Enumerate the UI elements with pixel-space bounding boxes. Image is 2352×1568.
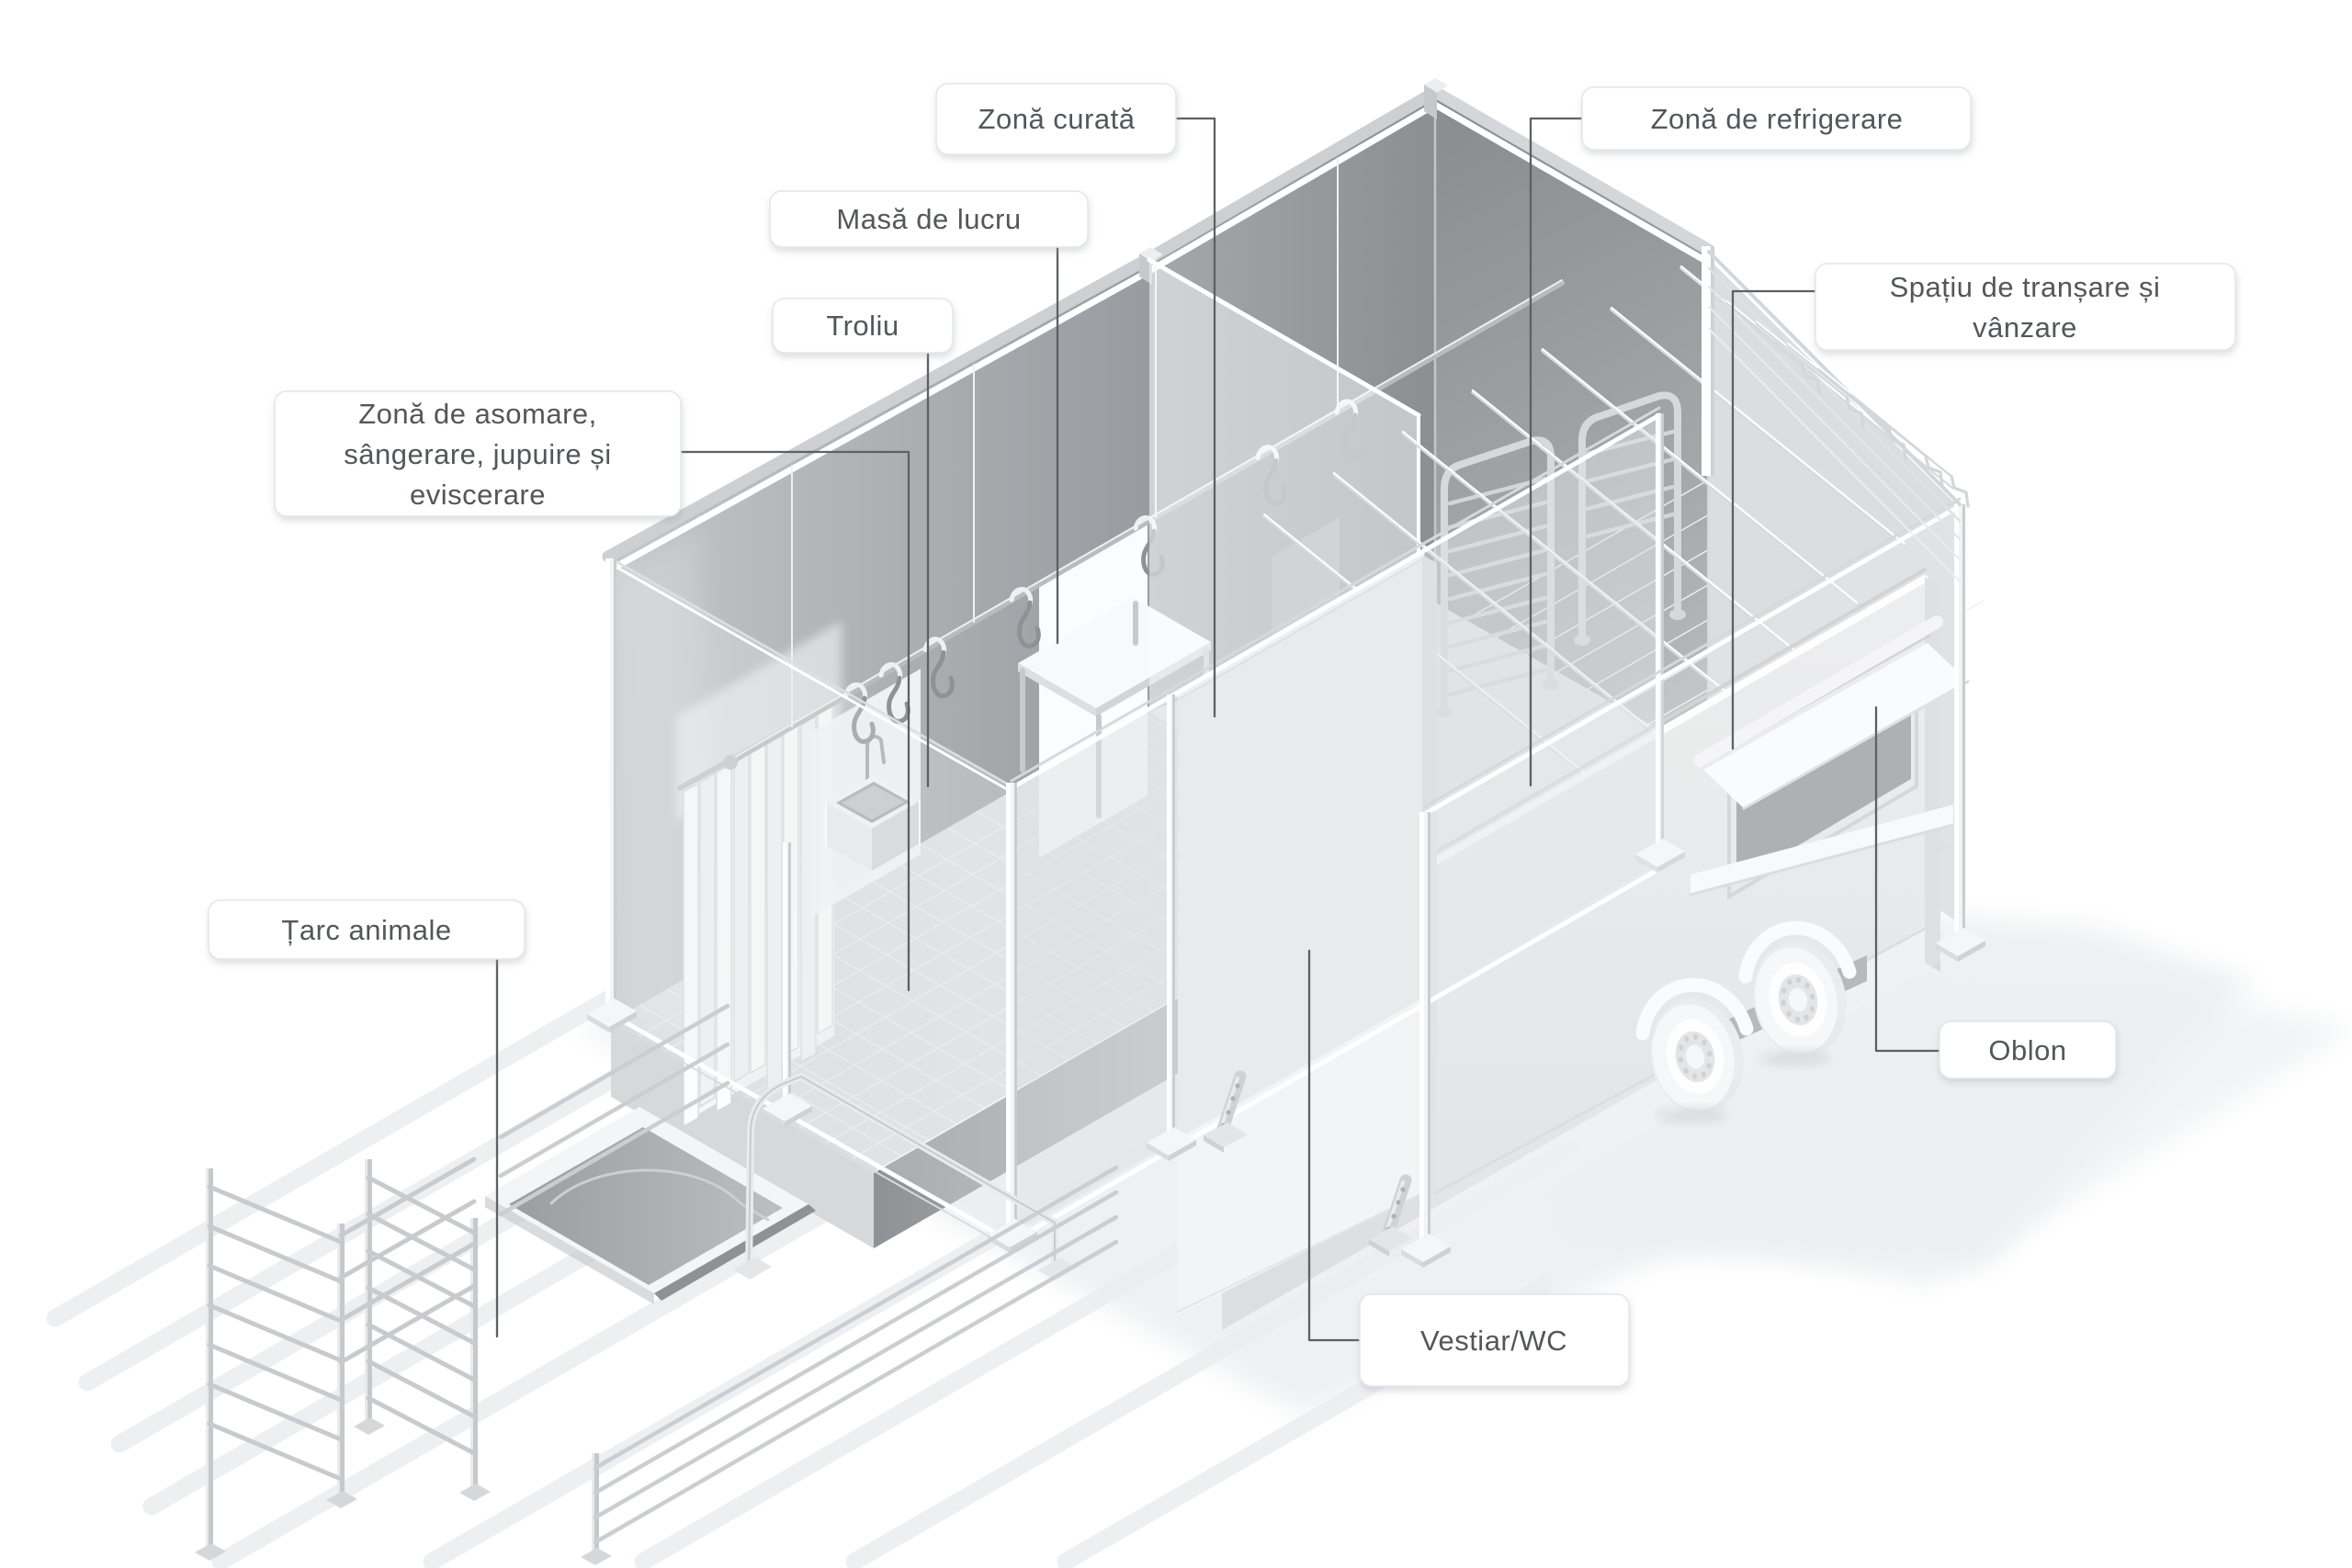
svg-text:eviscerare: eviscerare [410,479,546,511]
svg-text:Spațiu de tranșare și: Spațiu de tranșare și [1890,271,2161,303]
svg-text:Vestiar/WC: Vestiar/WC [1420,1325,1567,1357]
svg-text:Zonă de refrigerare: Zonă de refrigerare [1651,103,1904,135]
svg-text:Troliu: Troliu [826,310,899,342]
svg-text:vânzare: vânzare [1973,311,2077,344]
svg-text:sângerare, jupuire și: sângerare, jupuire și [344,438,611,470]
svg-text:Zonă curată: Zonă curată [978,103,1136,135]
svg-text:Masă de lucru: Masă de lucru [836,203,1021,235]
svg-text:Oblon: Oblon [1988,1034,2066,1066]
svg-text:Zonă de asomare,: Zonă de asomare, [358,398,597,430]
svg-text:Țarc animale: Țarc animale [281,914,451,946]
